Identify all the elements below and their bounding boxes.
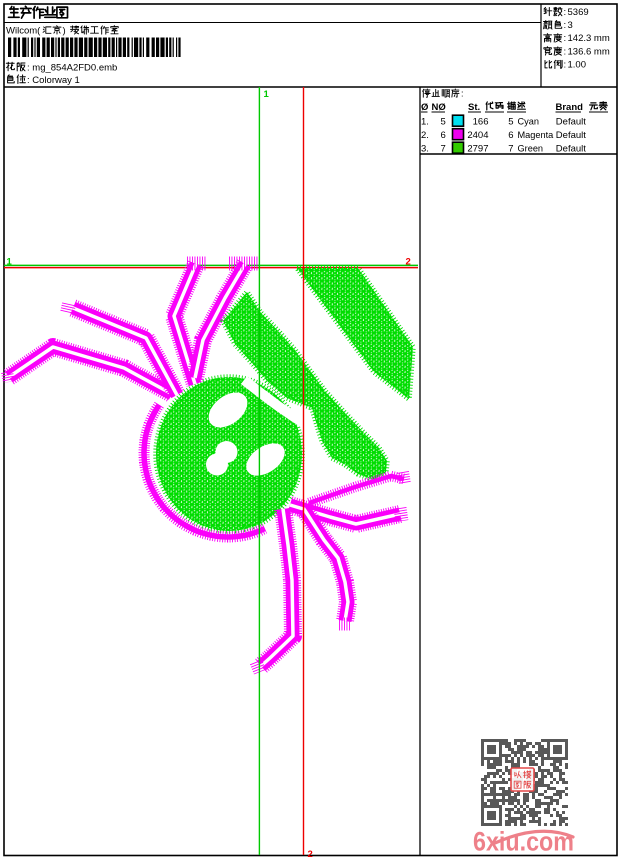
svg-text:Default: Default — [556, 144, 586, 155]
svg-text:142.3 mm: 142.3 mm — [568, 33, 610, 44]
svg-text:1.: 1. — [421, 117, 429, 128]
svg-text::: : — [564, 46, 567, 57]
svg-text:Green: Green — [518, 144, 544, 154]
svg-text:6: 6 — [441, 130, 446, 141]
svg-text:7: 7 — [508, 144, 513, 155]
svg-text:Default: Default — [556, 130, 586, 141]
svg-text:5: 5 — [508, 117, 513, 128]
svg-text:5: 5 — [441, 117, 446, 128]
svg-text:5369: 5369 — [568, 7, 589, 18]
svg-text:: mg_854A2FD0.emb: : mg_854A2FD0.emb — [27, 63, 117, 74]
svg-text:6: 6 — [508, 130, 513, 141]
svg-text:2: 2 — [406, 257, 411, 268]
svg-text:Magenta: Magenta — [518, 130, 555, 140]
svg-text:2404: 2404 — [467, 130, 488, 141]
svg-text:7: 7 — [441, 144, 446, 155]
svg-text:St.: St. — [468, 102, 480, 113]
svg-text:Brand: Brand — [556, 102, 584, 113]
svg-text:2: 2 — [308, 849, 313, 860]
svg-text:3: 3 — [568, 20, 573, 31]
svg-text::: : — [564, 7, 567, 18]
svg-text::: : — [564, 60, 567, 71]
svg-text:136.6 mm: 136.6 mm — [568, 46, 610, 57]
svg-text:Wilcom(: Wilcom( — [6, 26, 41, 37]
svg-text:1.00: 1.00 — [568, 60, 587, 71]
svg-text:2.: 2. — [421, 130, 429, 141]
svg-text::: : — [564, 20, 567, 31]
svg-text:Ø: Ø — [421, 102, 428, 113]
svg-text:NØ: NØ — [432, 102, 446, 113]
svg-text:Default: Default — [556, 117, 586, 128]
svg-text:6xiu.com: 6xiu.com — [473, 827, 574, 857]
svg-text:1: 1 — [7, 257, 13, 268]
svg-text:): ) — [63, 26, 66, 37]
svg-text:2797: 2797 — [467, 144, 488, 155]
svg-text:3.: 3. — [421, 144, 429, 155]
svg-text::: : — [461, 89, 464, 99]
svg-text::: : — [564, 33, 567, 44]
svg-text:: Colorway 1: : Colorway 1 — [27, 75, 80, 86]
svg-text:1: 1 — [264, 89, 270, 100]
svg-text:166: 166 — [473, 117, 489, 128]
svg-text:Cyan: Cyan — [518, 117, 539, 127]
